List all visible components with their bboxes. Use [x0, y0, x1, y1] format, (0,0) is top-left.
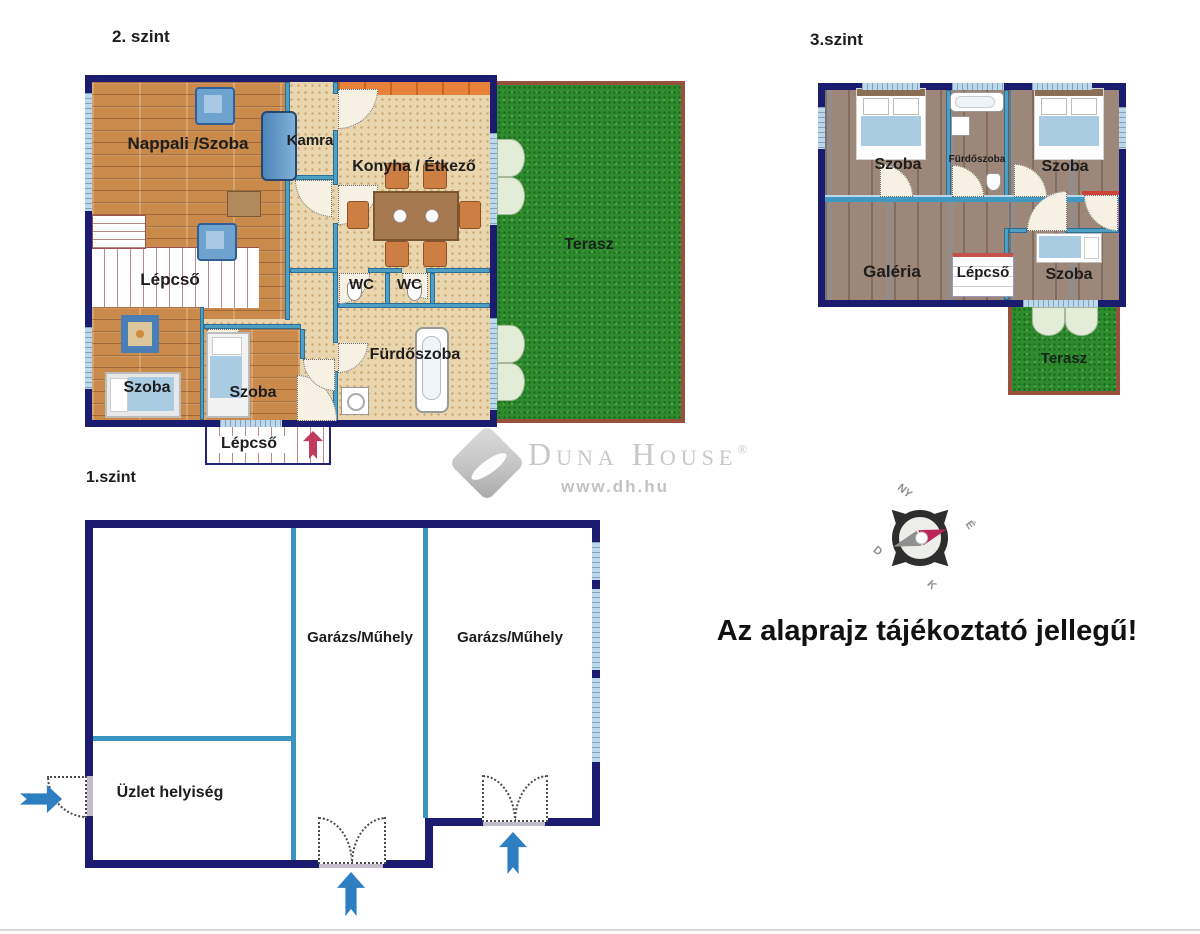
room-label: Szoba	[207, 385, 299, 402]
dining-chair	[423, 241, 447, 267]
room-label: Szoba	[1024, 267, 1114, 284]
terrace-label: Terasz	[497, 237, 681, 254]
room-label: Konyha / Étkező	[338, 159, 490, 176]
armchair-icon	[197, 223, 237, 261]
terrace-door	[1032, 307, 1098, 337]
room-label: Lépcső	[948, 265, 1018, 281]
room-label: WC	[387, 277, 432, 293]
terrace-label: Terasz	[1012, 351, 1116, 367]
window	[490, 133, 497, 225]
headboard	[1035, 89, 1103, 96]
bathtub-basin	[955, 96, 995, 108]
window	[490, 318, 497, 410]
room-label: Fürdőszoba	[340, 347, 490, 364]
door-leaf	[1032, 307, 1065, 336]
wall	[338, 303, 490, 308]
door-leaf	[497, 139, 525, 177]
window	[818, 107, 825, 149]
bathtub-icon	[415, 327, 449, 413]
door-leaf	[497, 177, 525, 215]
floor1-title: 1.szint	[86, 470, 206, 487]
room-label: Szoba	[97, 380, 197, 397]
door-arc	[514, 775, 548, 822]
fireplace-icon	[121, 315, 159, 353]
pillow	[1041, 98, 1067, 115]
pillow	[1084, 237, 1099, 259]
pillow	[212, 337, 242, 355]
room-label: Szoba	[846, 157, 950, 174]
up-arrow-icon	[303, 431, 323, 459]
window	[1119, 107, 1126, 149]
room-label: Lépcső	[110, 271, 230, 289]
wall	[1004, 90, 1009, 198]
floor2-terrace: Terasz	[497, 81, 685, 423]
toilet-icon	[986, 173, 1001, 191]
room-label: WC	[338, 277, 385, 293]
window-mullion	[592, 670, 600, 678]
wall	[1009, 228, 1027, 233]
wall	[85, 520, 600, 528]
door-leaf	[497, 325, 525, 363]
floor3-plan: Szoba Fürdőszoba Szoba Galéria Lépcső Sz…	[818, 83, 1138, 403]
window	[1032, 83, 1092, 90]
wall	[426, 268, 490, 273]
blanket	[861, 116, 921, 146]
floor-plan-page: 2. szint	[0, 0, 1200, 934]
cushion	[204, 95, 222, 113]
bed-single	[206, 332, 250, 418]
dining-chair	[385, 241, 409, 267]
dining-table-icon	[373, 191, 459, 241]
cushion	[206, 231, 224, 249]
door-arc	[482, 775, 516, 822]
stairs-label: Lépcső	[213, 436, 285, 453]
window-mullion	[592, 580, 600, 589]
wall	[290, 268, 338, 273]
plate	[393, 209, 407, 223]
room-label: Kamra	[281, 133, 339, 149]
room-label: Garázs/Műhely	[294, 630, 426, 646]
logo-brand: Duna House®	[528, 436, 868, 473]
page-bottom-rule	[0, 929, 1200, 931]
floor2-title: 2. szint	[112, 28, 232, 46]
bed-double	[856, 88, 926, 160]
room-label: Garázs/Műhely	[430, 630, 590, 646]
logo-reg-mark: ®	[737, 441, 747, 456]
dining-chair	[347, 201, 369, 229]
floor2-stairs-exit: Lépcső	[205, 427, 331, 465]
floor3-terrace: Terasz	[1008, 307, 1120, 395]
pillow	[893, 98, 919, 115]
entry-arrow-icon	[337, 872, 365, 916]
headboard	[857, 89, 925, 96]
door-arc	[351, 817, 386, 864]
terrace-door	[497, 139, 525, 213]
disclaimer-text: Az alaprajz tájékoztató jellegű!	[662, 616, 1192, 646]
floor3-title: 3.szint	[810, 31, 930, 49]
window	[592, 542, 600, 762]
door-leaf	[1065, 307, 1098, 336]
coffee-table-icon	[227, 191, 261, 217]
door-arc	[318, 817, 353, 864]
wall	[93, 736, 291, 741]
floor2-plan: Terasz Lépcső Nappali /Szoba Kamra Konyh…	[85, 75, 705, 475]
red-lintel	[1082, 191, 1119, 195]
blanket	[1039, 116, 1099, 146]
dining-chair	[459, 201, 481, 229]
room-label: Szoba	[1016, 159, 1114, 176]
wall	[300, 329, 305, 359]
logo-url: www.dh.hu	[540, 478, 690, 496]
armchair-icon	[195, 87, 235, 125]
window	[862, 83, 920, 90]
wall	[425, 818, 433, 868]
wall	[423, 528, 428, 818]
entry-arrow-icon	[499, 832, 527, 874]
duna-house-logo: Duna House® www.dh.hu	[452, 428, 892, 506]
room-label: Nappali /Szoba	[103, 135, 273, 153]
room-label: Galéria	[836, 263, 948, 281]
window	[952, 83, 1004, 90]
door-leaf	[497, 363, 525, 401]
floor1-plan: Garázs/Műhely Garázs/Műhely Üzlet helyis…	[85, 520, 645, 920]
pillow	[863, 98, 889, 115]
plate	[425, 209, 439, 223]
floor2-stairs-landing	[92, 215, 146, 249]
blanket	[1039, 236, 1081, 258]
compass-rose: NY É D K	[868, 486, 980, 598]
wall	[291, 528, 296, 860]
room-label: Fürdőszoba	[946, 155, 1008, 166]
terrace-door	[497, 325, 525, 399]
window	[85, 327, 92, 389]
fireplace-fire	[136, 330, 144, 338]
sink-icon	[951, 116, 970, 136]
washer-icon	[341, 387, 369, 415]
bed-single	[1036, 233, 1102, 263]
logo-brand-text: Duna House	[528, 436, 737, 472]
pillow	[1071, 98, 1097, 115]
window	[85, 93, 92, 211]
bathtub-icon	[950, 92, 1004, 112]
bed-double	[1034, 88, 1104, 160]
room-label: Üzlet helyiség	[95, 785, 245, 802]
washer-drum	[347, 393, 365, 411]
